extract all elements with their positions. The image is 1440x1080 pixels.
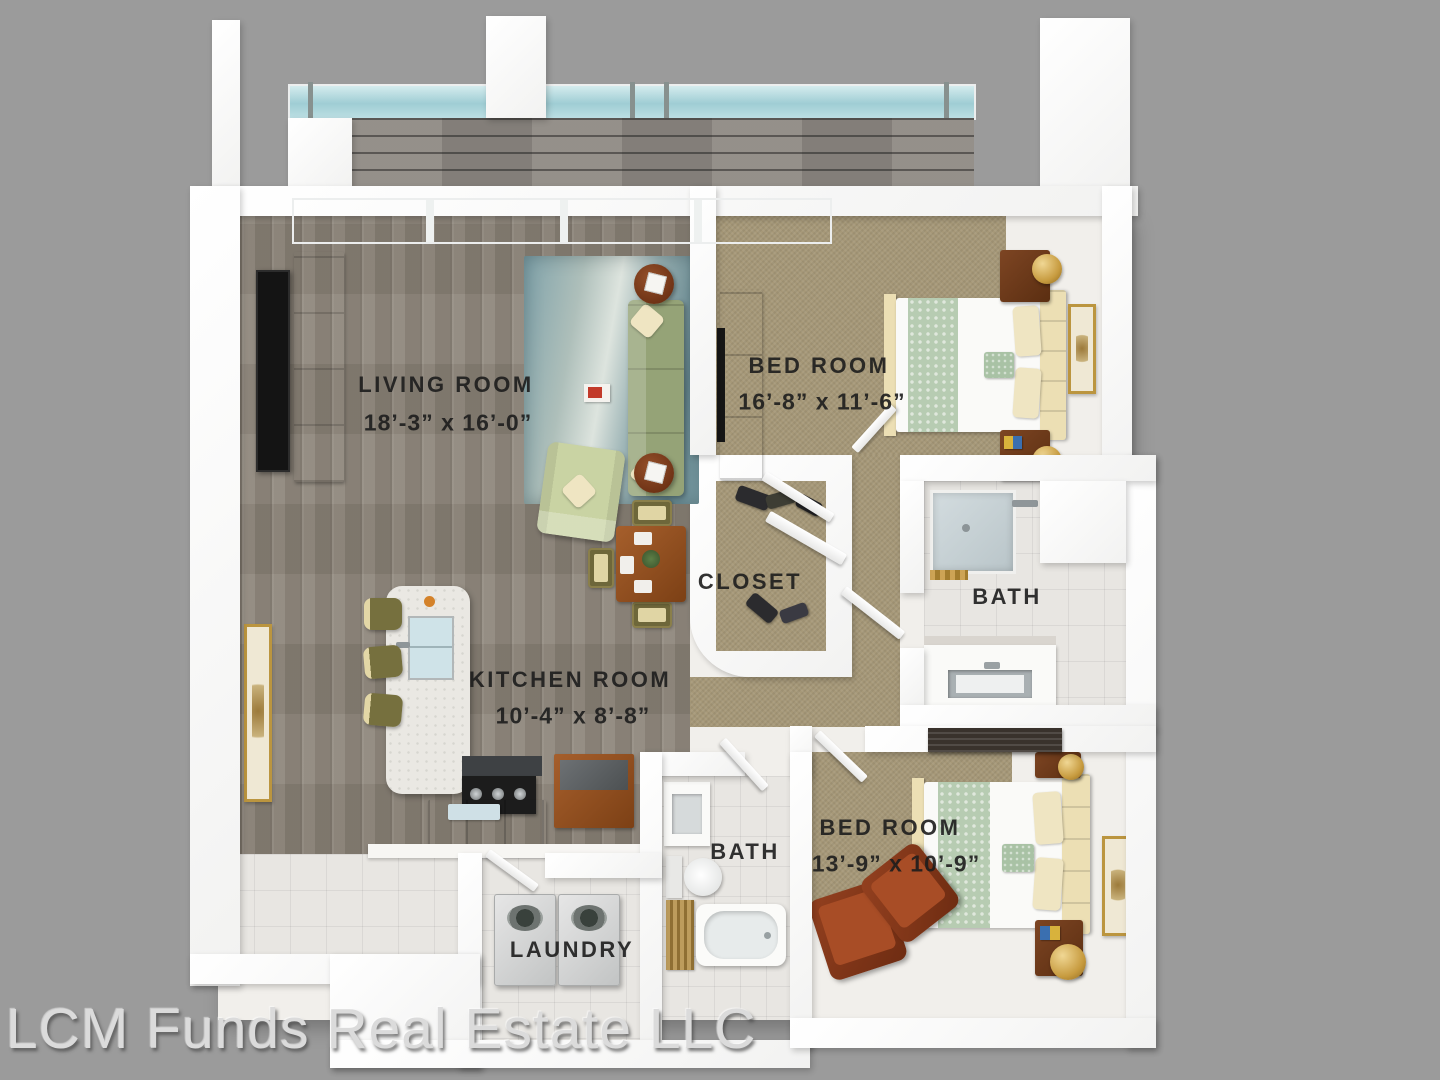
bedroom1-label: BED ROOM	[749, 353, 890, 379]
bath2-label: BATH	[710, 839, 779, 865]
labels-layer: LIVING ROOM 18’-3” x 16’-0” BED ROOM 16’…	[0, 0, 1440, 1080]
kitchen-label: KITCHEN ROOM	[469, 667, 671, 693]
laundry-label: LAUNDRY	[510, 937, 634, 963]
living-room-label: LIVING ROOM	[358, 372, 533, 398]
bedroom1-dimensions: 16’-8” x 11’-6”	[738, 389, 905, 416]
bedroom2-label: BED ROOM	[820, 815, 961, 841]
bedroom2-dimensions: 13’-9” x 10’-9”	[812, 851, 980, 878]
closet-label: CLOSET	[698, 569, 802, 595]
kitchen-dimensions: 10’-4” x 8’-8”	[496, 703, 651, 730]
bath1-label: BATH	[972, 584, 1041, 610]
floor-plan-render: { "plan": { "watermark": "LCM Funds Real…	[0, 0, 1440, 1080]
watermark-text: LCM Funds Real Estate LLC	[6, 996, 757, 1062]
living-room-dimensions: 18’-3” x 16’-0”	[364, 410, 532, 437]
apartment-floor-plan: LIVING ROOM 18’-3” x 16’-0” BED ROOM 16’…	[0, 0, 1440, 1080]
